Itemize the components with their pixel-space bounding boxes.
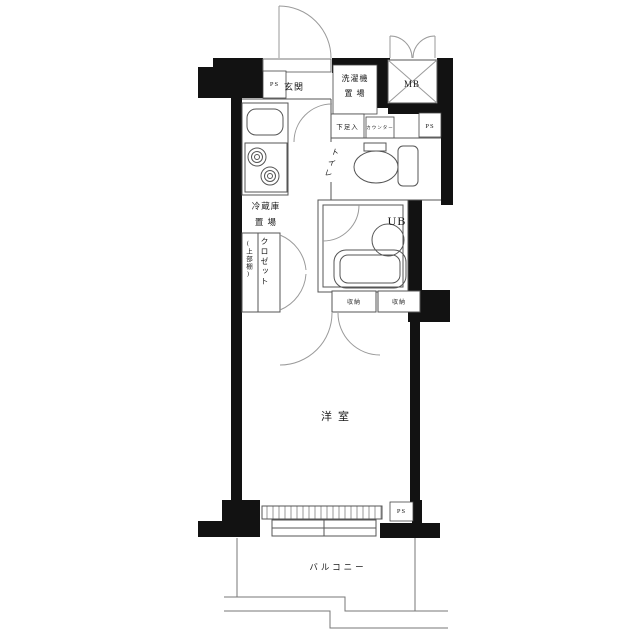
floorplan-drawing	[0, 0, 640, 640]
label-closet: クロゼット	[260, 237, 268, 287]
label-ps-top-right: PS	[419, 121, 441, 133]
kitchen	[242, 99, 331, 195]
label-ps-bottom: PS	[390, 506, 413, 518]
label-western-room: 洋室	[310, 408, 366, 428]
label-storage-2: 収納	[378, 298, 420, 309]
label-entrance: 玄関	[272, 79, 316, 95]
bath-door-arc	[323, 205, 359, 241]
entrance-door-arc	[263, 6, 331, 72]
window	[262, 506, 382, 536]
label-counter: カウンター	[366, 124, 394, 132]
label-refrigerator: 冷蔵庫 置 場	[243, 198, 289, 230]
meter-box	[388, 36, 437, 103]
label-balcony: バルコニー	[298, 560, 378, 575]
kitchen-sink	[247, 109, 283, 135]
floorplan: PS 玄関 洗濯機 置 場 MB 下足入 カウンター PS トイレ UB 冷蔵庫…	[0, 0, 640, 640]
hall-door-arc	[294, 104, 332, 142]
label-washer: 洗濯機 置 場	[333, 71, 377, 101]
balcony-outline	[224, 538, 448, 628]
label-unit-bath: UB	[382, 211, 412, 233]
room-door-arcs	[280, 313, 380, 365]
toilet-bowl	[354, 151, 398, 183]
toilet-tank	[398, 146, 418, 186]
label-closet-note: (上部棚)	[244, 240, 251, 279]
label-storage-1: 収納	[332, 298, 376, 309]
label-shoe-box: 下足入	[331, 122, 364, 134]
label-meter-box: MB	[397, 76, 427, 92]
